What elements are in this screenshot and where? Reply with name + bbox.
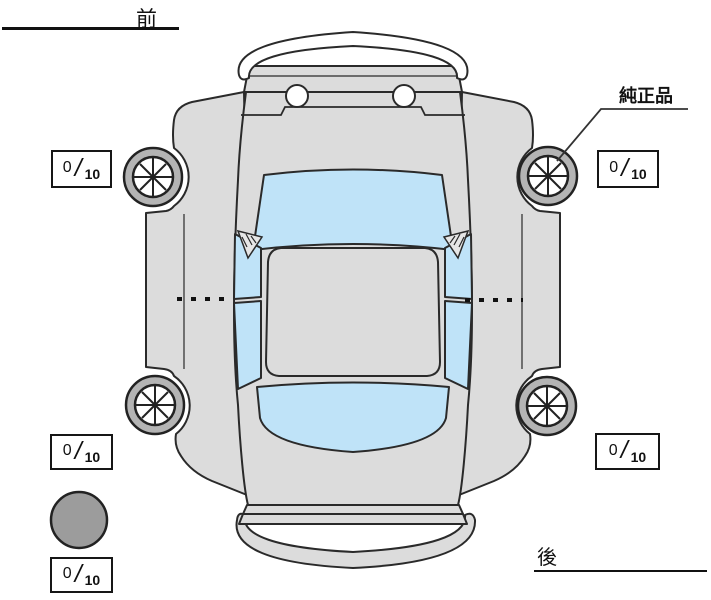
tread-max: 10 (85, 450, 101, 464)
trunk-molding-lower (239, 514, 467, 524)
tread-separator: / (75, 156, 82, 181)
spare-tire-circle (51, 492, 107, 548)
tread-box-front-left: 0 / 10 (51, 150, 112, 188)
tread-value: 0 (609, 443, 618, 459)
tread-box-rear-left: 0 / 10 (50, 434, 113, 470)
rear-underline (534, 570, 707, 572)
hood-circle-left (286, 85, 308, 107)
tread-box-spare: 0 / 10 (50, 557, 113, 593)
side-window-rear-right (445, 301, 472, 389)
tread-max: 10 (85, 573, 101, 587)
tread-max: 10 (85, 167, 101, 181)
vehicle-inspection-diagram: 前 純正品 後 0 / 10 0 / 10 0 / 10 0 / 10 0 / … (0, 0, 711, 600)
tread-separator: / (75, 562, 82, 587)
tread-box-rear-right: 0 / 10 (595, 433, 660, 470)
tread-value: 0 (63, 443, 72, 459)
tread-box-front-right: 0 / 10 (597, 150, 659, 188)
tread-separator: / (75, 439, 82, 464)
tread-value: 0 (63, 566, 72, 582)
hood-front-band (244, 66, 462, 92)
genuine-part-label: 純正品 (619, 82, 673, 108)
roof (266, 248, 440, 376)
rear-label: 後 (537, 541, 558, 570)
trunk-molding-upper (243, 505, 463, 514)
tread-value: 0 (63, 160, 72, 176)
tread-value: 0 (609, 160, 618, 176)
wheel-front-left (124, 148, 182, 206)
tread-separator: / (621, 438, 628, 463)
tread-max: 10 (631, 167, 647, 181)
car-top-view-graphic (0, 0, 711, 600)
side-window-rear-left (234, 301, 261, 389)
windshield (253, 170, 453, 251)
wheel-rear-left (126, 376, 184, 434)
tread-max: 10 (631, 450, 647, 464)
wheel-front-right (519, 147, 577, 205)
hood-circle-right (393, 85, 415, 107)
tread-separator: / (621, 156, 628, 181)
front-underline (2, 27, 179, 30)
wheel-rear-right (518, 377, 576, 435)
